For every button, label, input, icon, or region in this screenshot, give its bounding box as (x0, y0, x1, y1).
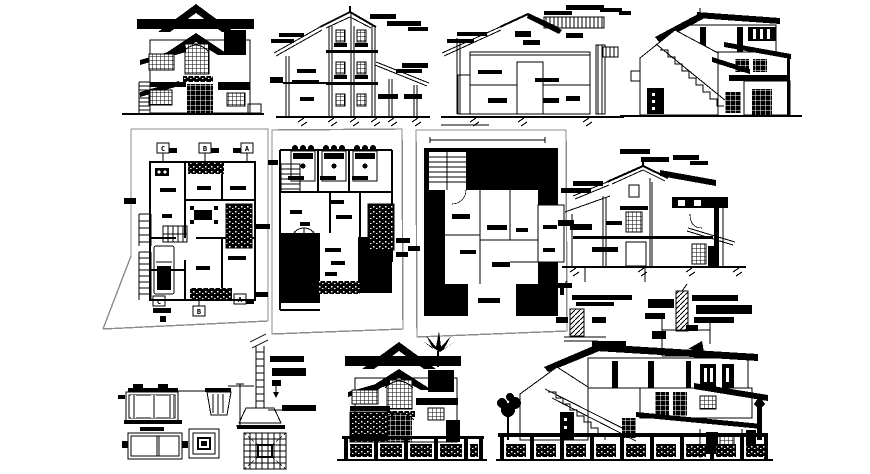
parapet-detail-drawing (645, 284, 752, 358)
side-elevation-stair-drawing (619, 8, 802, 117)
section-marker-a-top: A (233, 143, 253, 163)
marker-letter: A (245, 145, 250, 153)
section-aa-drawing (441, 5, 624, 126)
marker-letter: C (161, 145, 165, 153)
section-marker-b-bottom: B (193, 300, 205, 316)
palm-tree-icon (423, 331, 455, 352)
column-footing-detail-drawing (228, 334, 316, 469)
drawing-canvas: C B A (0, 0, 870, 474)
section-bb-drawing (270, 6, 430, 126)
front-elevation-drawing (122, 4, 264, 115)
marker-letter: C (157, 298, 161, 306)
side-elevation-compound-drawing (496, 343, 773, 461)
ground-floor-plan-drawing: C B A (103, 129, 270, 329)
septic-tank-detail-drawing (118, 384, 231, 459)
marker-letter: B (197, 308, 201, 316)
architectural-drawing-sheet: C B A (0, 0, 870, 474)
section-marker-b-top: B (199, 143, 219, 163)
front-elevation-compound-drawing (337, 331, 487, 461)
terrace-floor-plan-drawing (408, 130, 574, 337)
first-floor-plan-drawing (268, 129, 410, 334)
cross-section-drawing (561, 149, 746, 282)
marker-letter: B (203, 145, 207, 153)
section-marker-c-top: C (157, 143, 177, 163)
